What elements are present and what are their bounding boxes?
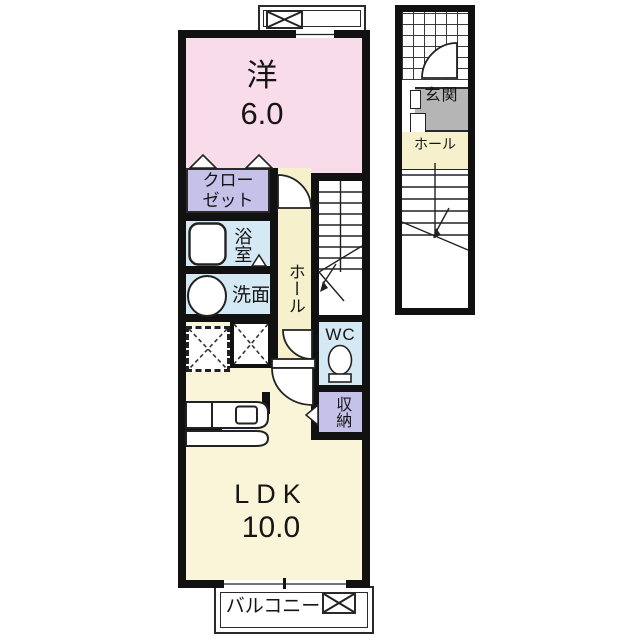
wall <box>178 30 370 38</box>
floor-plan: バルコニー <box>0 0 640 640</box>
stairwell-2f <box>319 181 362 315</box>
ac-unit-box-balcony <box>322 592 356 614</box>
ac-unit-box <box>266 10 303 29</box>
wall <box>311 173 319 432</box>
closet-label: クローゼット <box>199 171 257 211</box>
porch-tile-hatch <box>402 12 468 80</box>
wall <box>311 432 370 440</box>
western-room-area: 6.0 <box>226 94 298 134</box>
entrance-section <box>395 5 475 315</box>
wc-label: WC <box>319 324 362 346</box>
washroom-label: 洗面 <box>228 284 274 308</box>
bath-label: 浴室 <box>231 224 253 266</box>
wall <box>362 30 370 588</box>
entrance-hall-label: ホール <box>402 134 468 154</box>
room-bath <box>186 221 270 266</box>
wall-jamb <box>262 392 270 414</box>
wall-kitchen-stub <box>178 427 222 436</box>
ldk-area: 10.0 <box>196 510 346 546</box>
balcony-label: バルコニー <box>220 594 326 620</box>
wall <box>311 385 362 392</box>
wall <box>178 30 186 588</box>
ldk-label: LDK <box>196 479 346 511</box>
western-room-label: 洋 <box>226 56 298 96</box>
hall-label: ホール <box>285 240 305 336</box>
storage-label: 収納 <box>331 393 351 431</box>
genkan-label: 玄関 <box>415 84 468 108</box>
washer-space-box <box>230 320 272 368</box>
window-symbol-top <box>296 30 334 38</box>
window-center-tick <box>283 578 286 589</box>
wall <box>311 315 362 322</box>
wall <box>311 173 370 181</box>
wall <box>178 213 278 221</box>
refrigerator-space-box <box>186 326 230 372</box>
wall <box>178 266 278 274</box>
